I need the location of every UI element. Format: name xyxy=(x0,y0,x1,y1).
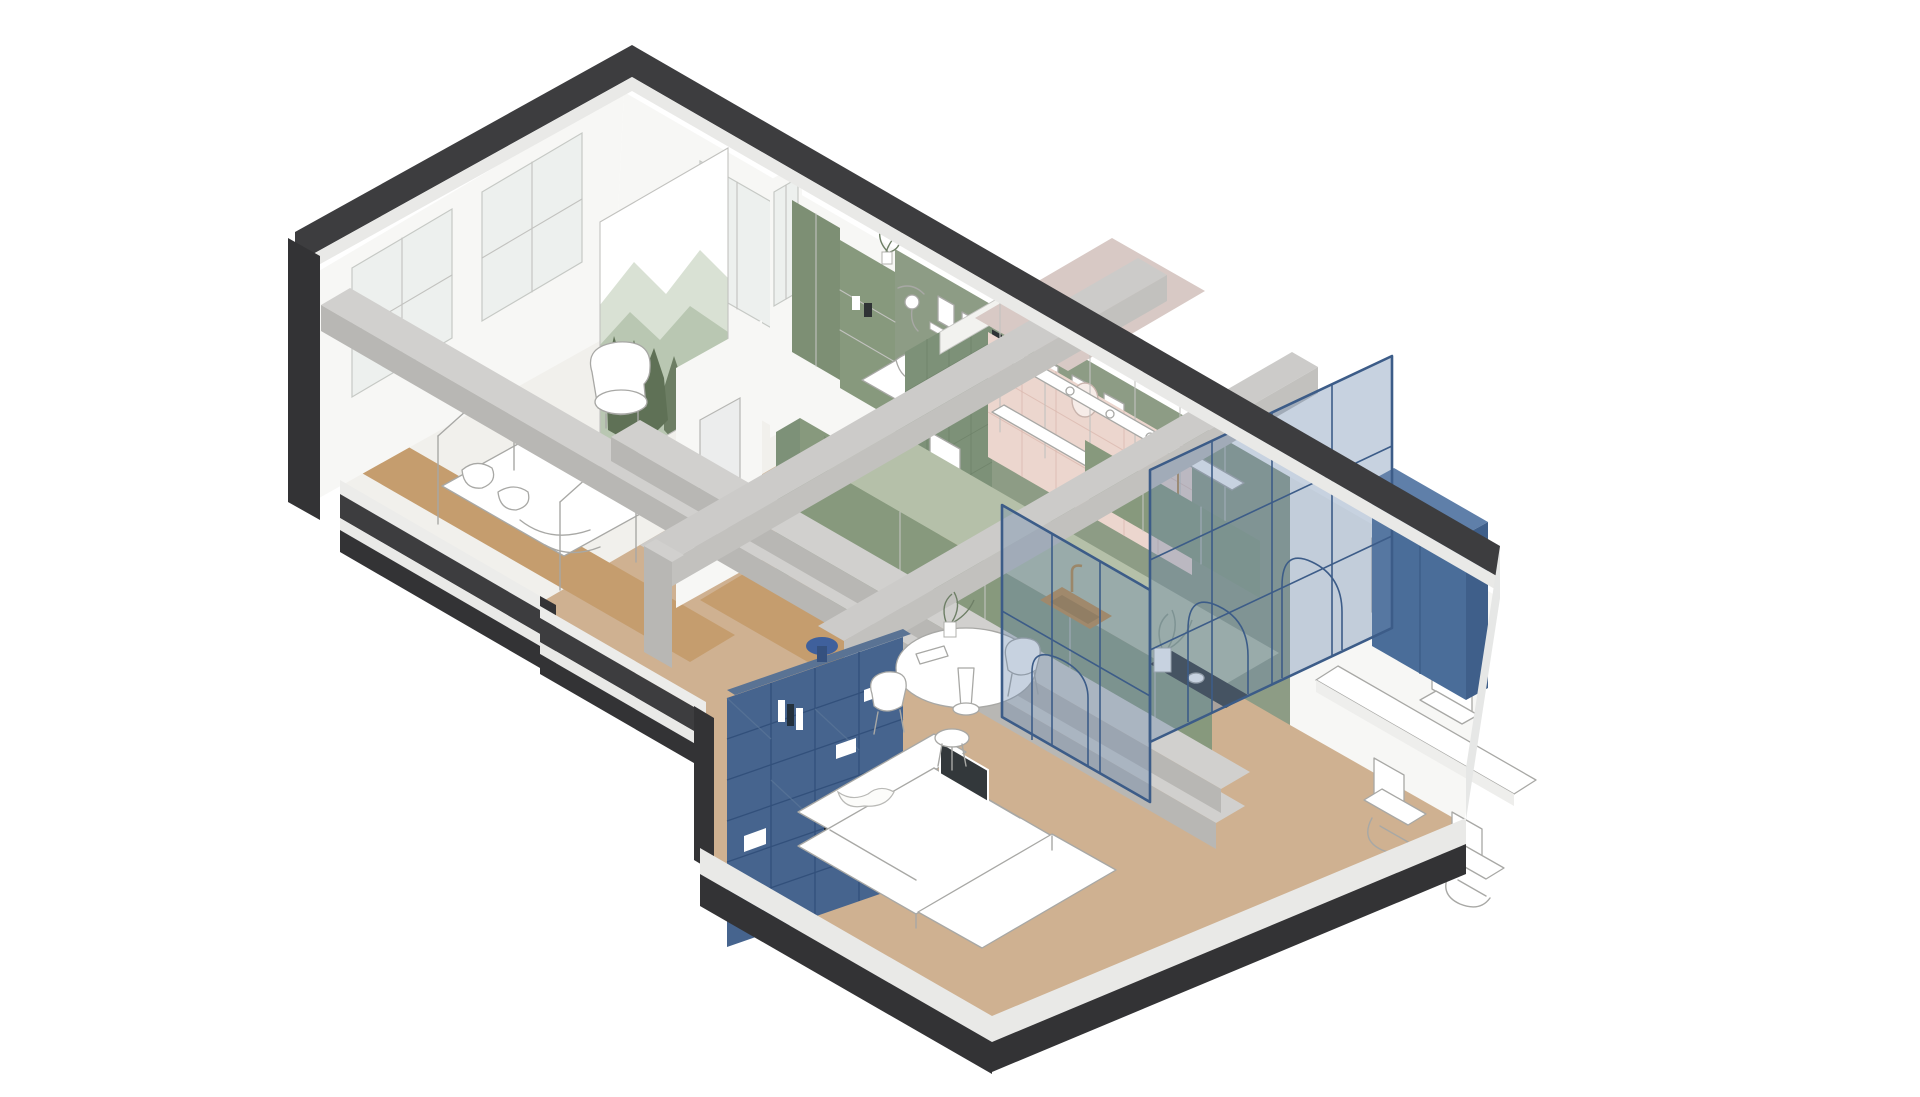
jar xyxy=(1066,387,1074,395)
book xyxy=(778,700,785,722)
blue-stool-base xyxy=(817,646,827,662)
page xyxy=(0,0,1920,1097)
plant-pot xyxy=(882,252,892,264)
table-vase xyxy=(944,622,956,637)
notch-wall-edge xyxy=(694,706,714,872)
corner-wall-edge xyxy=(288,238,320,520)
table-pedestal xyxy=(958,668,974,708)
apartment-axonometric-illustration xyxy=(0,0,1920,1097)
book xyxy=(864,303,872,317)
book xyxy=(852,296,860,310)
jar xyxy=(1106,410,1114,418)
book xyxy=(787,704,794,726)
book xyxy=(796,708,803,730)
